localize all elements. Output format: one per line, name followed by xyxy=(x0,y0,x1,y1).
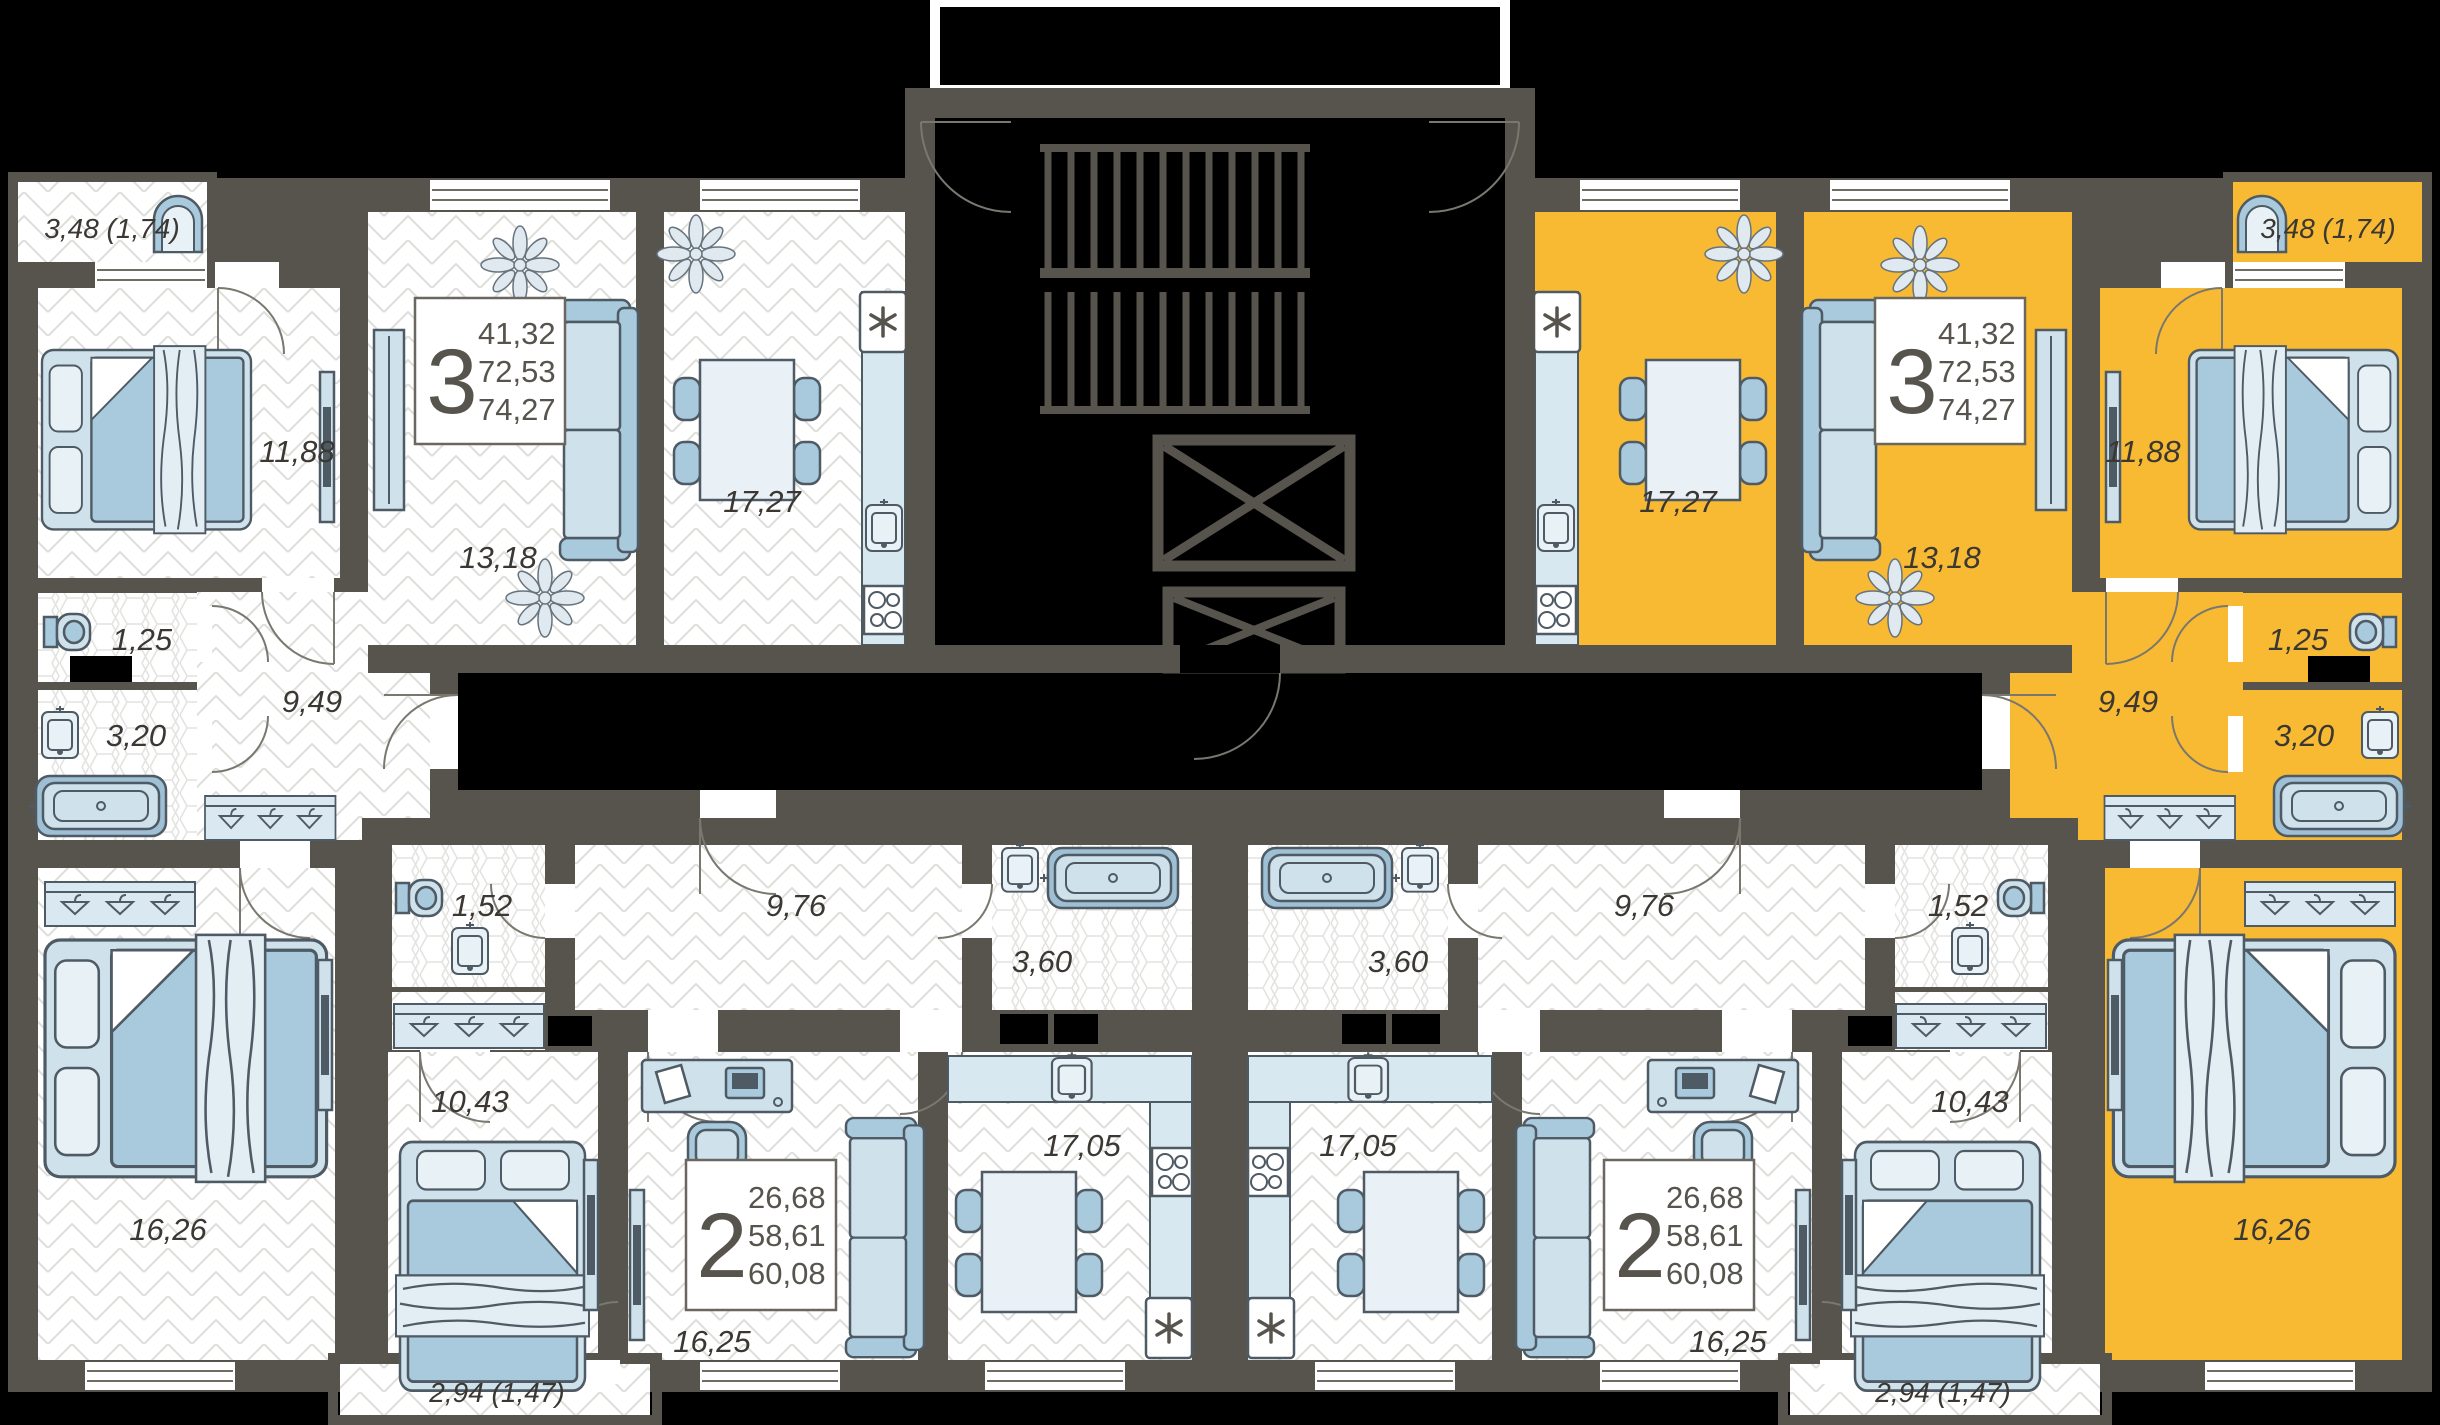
floor-plan-canvas: 3 41,32 72,53 74,27 3 41,32 72,53 74,27 … xyxy=(0,0,2440,1425)
apartment-info-card-3room-right[interactable]: 3 41,32 72,53 74,27 xyxy=(1875,298,2025,444)
floor-plan: 3 41,32 72,53 74,27 3 41,32 72,53 74,27 … xyxy=(0,0,2440,1425)
area-value: 41,32 xyxy=(1938,316,2016,351)
room-area-label: 11,88 xyxy=(2105,434,2181,469)
room-area-label: 3,20 xyxy=(106,718,166,753)
apartment-type-number: 2 xyxy=(696,1195,747,1297)
room-area-label: 2,94 (1,47) xyxy=(428,1377,564,1408)
area-value: 74,27 xyxy=(1938,392,2016,427)
apartment-type-number: 3 xyxy=(1886,331,1937,433)
area-value: 72,53 xyxy=(1938,354,2016,389)
area-value: 60,08 xyxy=(748,1256,826,1291)
apartment-info-card-2room-right[interactable]: 2 26,68 58,61 60,08 xyxy=(1604,1160,1754,1310)
room-area-label: 13,18 xyxy=(459,540,537,575)
area-value: 60,08 xyxy=(1666,1256,1744,1291)
room-area-label: 3,60 xyxy=(1012,944,1072,979)
room-area-label: 1,25 xyxy=(112,622,173,657)
room-area-label: 1,25 xyxy=(2268,622,2329,657)
room-area-label: 16,25 xyxy=(1689,1324,1767,1359)
area-value: 58,61 xyxy=(748,1218,826,1253)
room-area-label: 17,27 xyxy=(723,484,802,519)
room-area-label: 9,49 xyxy=(282,684,342,719)
room-area-label: 17,05 xyxy=(1043,1128,1121,1163)
room-area-label: 10,43 xyxy=(1931,1084,2009,1119)
shaft-top-outline xyxy=(935,2,1505,90)
room-area-label: 16,26 xyxy=(2233,1212,2311,1247)
room-area-label: 16,26 xyxy=(129,1212,207,1247)
area-value: 41,32 xyxy=(478,316,556,351)
apartment-info-card-3room-left[interactable]: 3 41,32 72,53 74,27 xyxy=(415,298,565,444)
room-area-label: 17,05 xyxy=(1319,1128,1397,1163)
room-area-label: 10,43 xyxy=(431,1084,509,1119)
room-area-label: 11,88 xyxy=(259,434,335,469)
apartment-type-number: 3 xyxy=(426,331,477,433)
area-value: 72,53 xyxy=(478,354,556,389)
room-area-label: 3,48 (1,74) xyxy=(44,213,179,244)
room-area-label: 1,52 xyxy=(452,888,512,923)
room-area-label: 9,76 xyxy=(766,888,827,923)
room-area-label: 9,49 xyxy=(2098,684,2158,719)
room-area-label: 13,18 xyxy=(1903,540,1981,575)
room-area-label: 9,76 xyxy=(1614,888,1675,923)
room-area-label: 17,27 xyxy=(1639,484,1718,519)
room-area-label: 3,60 xyxy=(1368,944,1428,979)
room-area-label: 16,25 xyxy=(673,1324,751,1359)
room-area-label: 3,48 (1,74) xyxy=(2260,213,2395,244)
room-area-label: 1,52 xyxy=(1928,888,1988,923)
area-value: 74,27 xyxy=(478,392,556,427)
room-area-label: 2,94 (1,47) xyxy=(1874,1377,2010,1408)
apartment-type-number: 2 xyxy=(1614,1195,1665,1297)
area-value: 58,61 xyxy=(1666,1218,1744,1253)
stair-elevator-core xyxy=(905,2,1535,759)
apartment-info-card-2room-left[interactable]: 2 26,68 58,61 60,08 xyxy=(686,1160,836,1310)
area-value: 26,68 xyxy=(748,1180,826,1215)
area-value: 26,68 xyxy=(1666,1180,1744,1215)
room-area-label: 3,20 xyxy=(2274,718,2334,753)
